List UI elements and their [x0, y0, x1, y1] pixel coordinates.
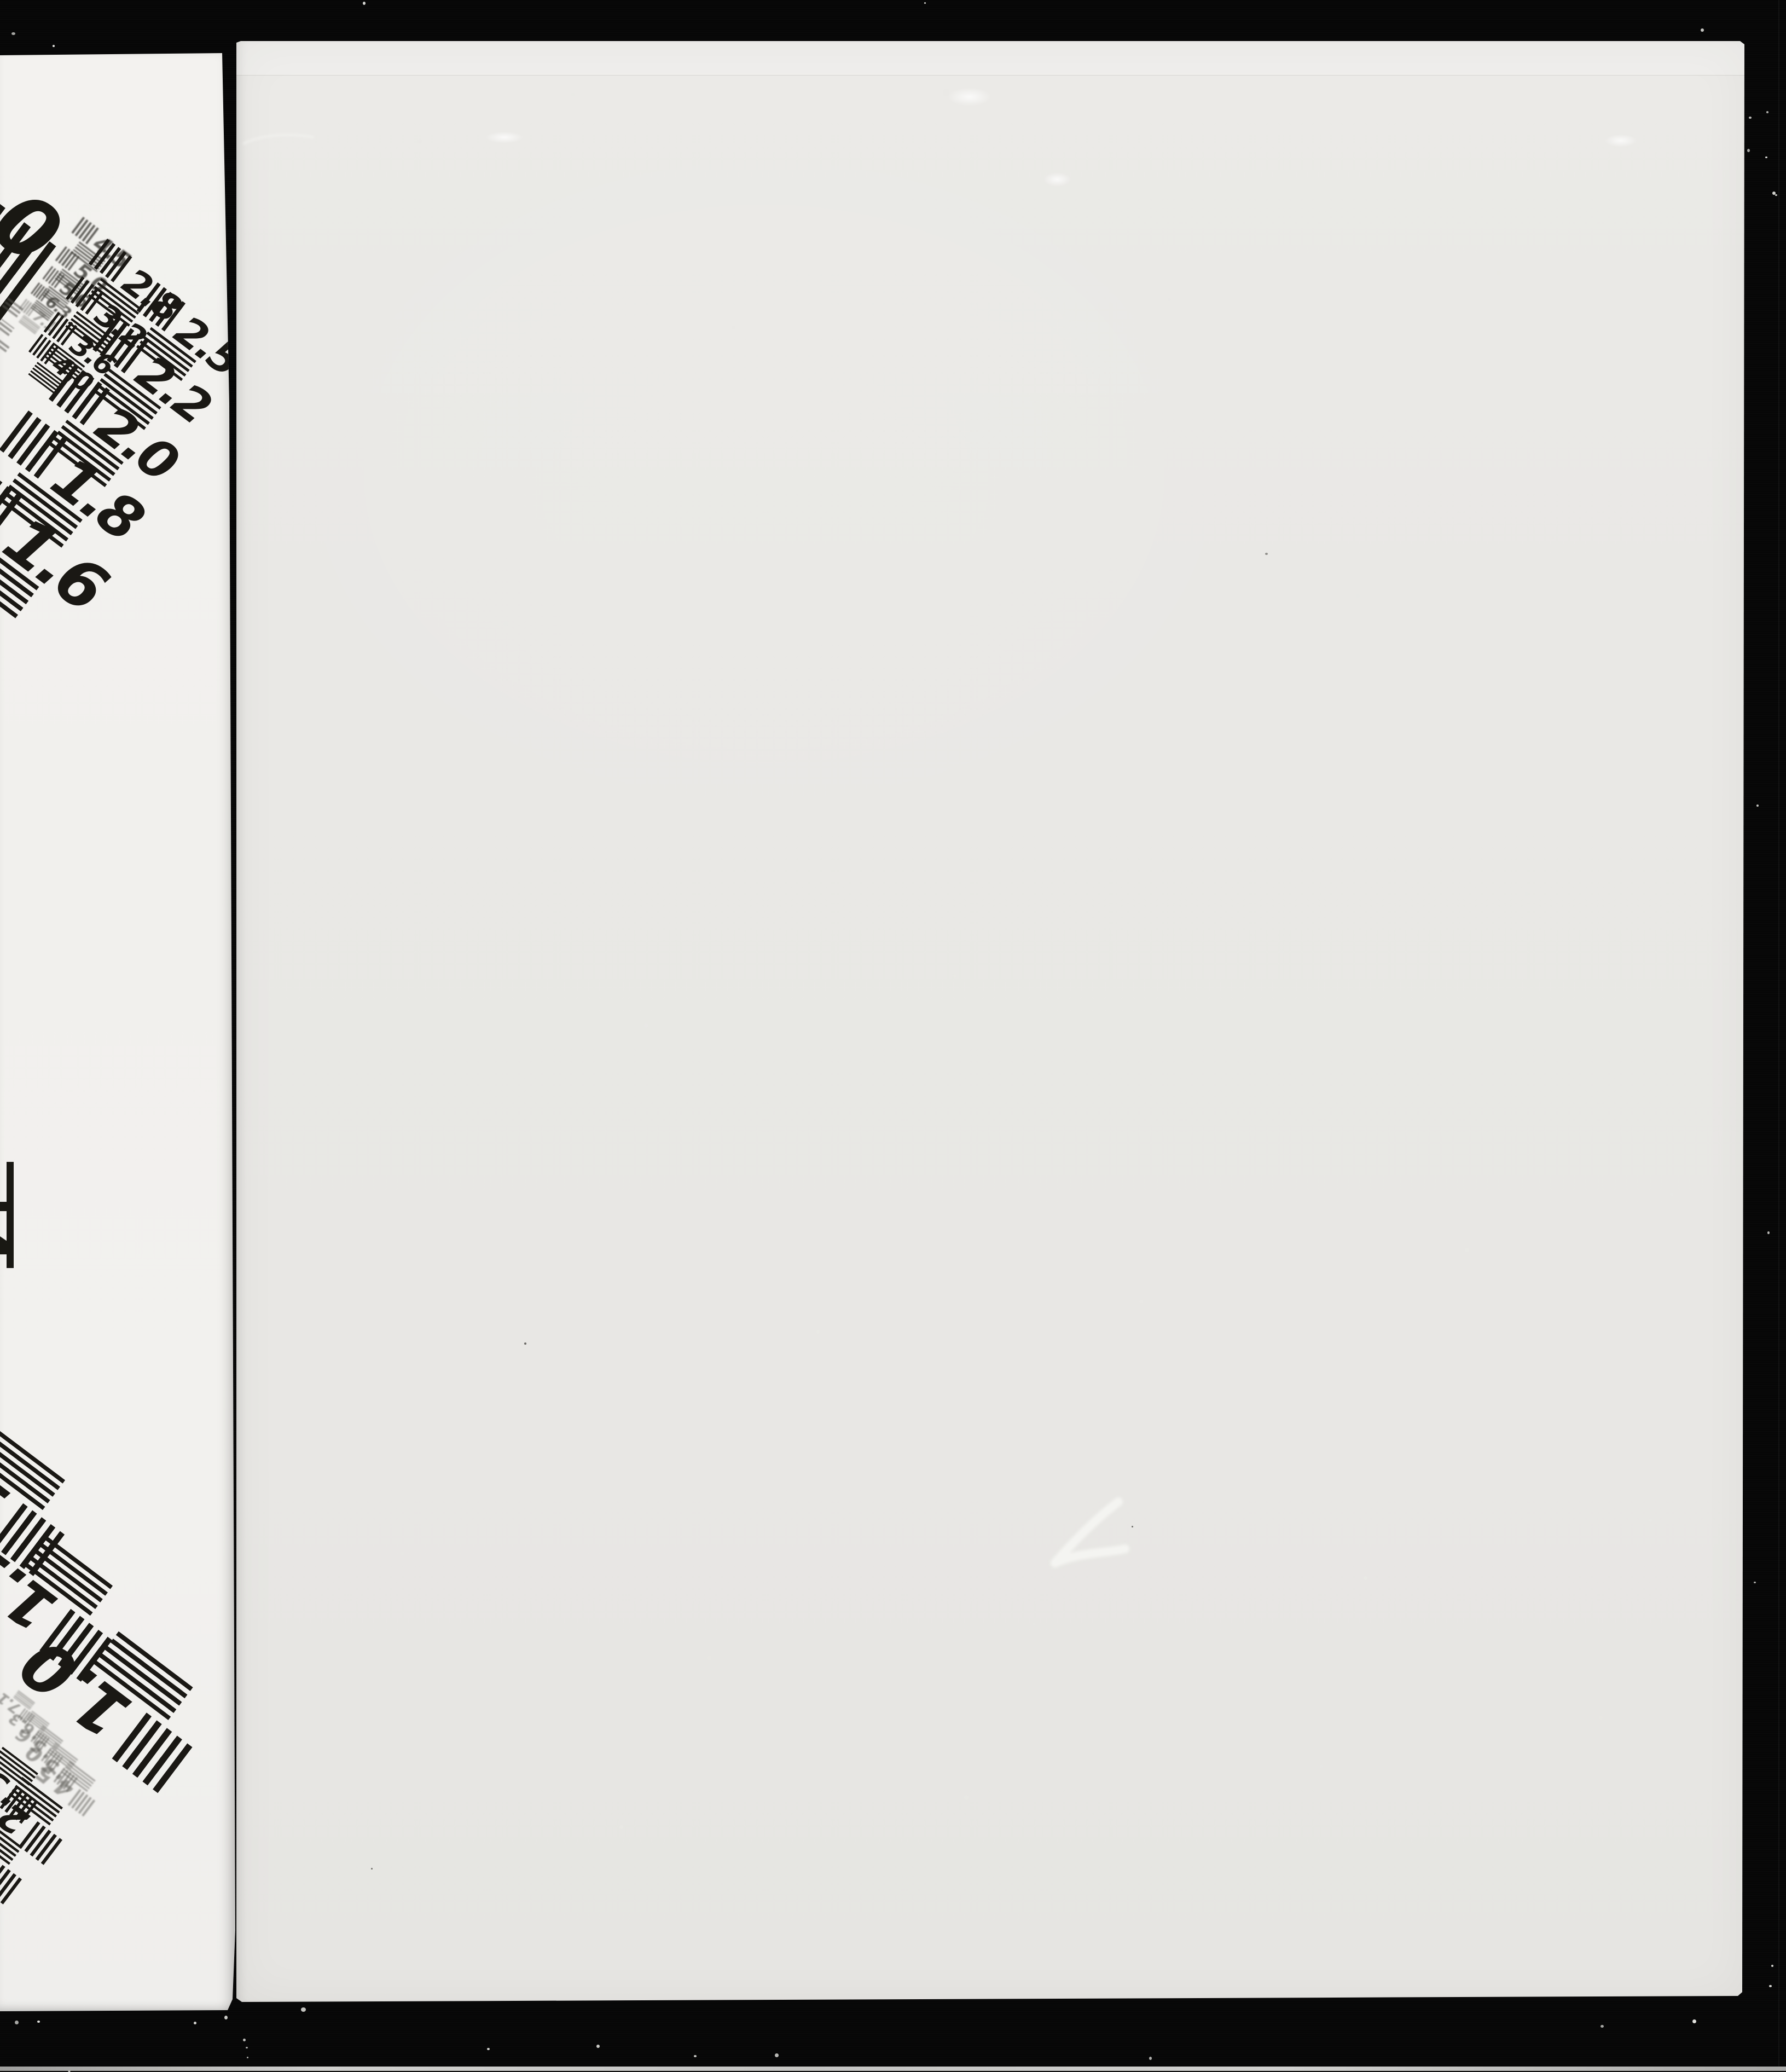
- pattern-vertical-lines: [71, 217, 98, 244]
- dust-speck: [1749, 117, 1752, 119]
- dust-speck: [243, 2039, 246, 2041]
- dust-speck: [1097, 687, 1101, 691]
- dust-speck: [466, 1234, 471, 1238]
- dust-speck: [1756, 805, 1759, 807]
- dust-speck: [417, 140, 422, 143]
- dust-speck: [707, 1656, 711, 1660]
- dust-speck: [1465, 1248, 1469, 1252]
- pattern-vertical-lines: [112, 1712, 193, 1793]
- dust-speck: [1775, 194, 1777, 196]
- dust-speck: [953, 974, 956, 978]
- dust-speck: [924, 2, 926, 4]
- dust-speck: [816, 1330, 820, 1334]
- dust-speck: [732, 326, 735, 329]
- dust-speck: [773, 717, 776, 720]
- dark-speck: [371, 1868, 373, 1870]
- edge-tick-pattern: [0, 336, 11, 352]
- film-scratch-line: [1778, 0, 1779, 2071]
- dust-speck: [571, 93, 575, 96]
- dust-speck: [596, 2045, 600, 2048]
- dust-speck: [1767, 1231, 1770, 1234]
- dust-speck: [1701, 28, 1704, 32]
- dust-speck: [619, 1825, 623, 1829]
- dust-speck: [224, 2016, 228, 2019]
- film-edge-strip: [0, 2067, 1786, 2071]
- dust-speck: [301, 2007, 306, 2012]
- dust-speck: [349, 895, 352, 898]
- dust-speck: [1765, 157, 1767, 158]
- dust-speck: [247, 2057, 248, 2058]
- faint-frame-line: [236, 75, 1744, 76]
- dust-speck: [1364, 1576, 1367, 1580]
- dust-speck: [246, 2047, 248, 2048]
- dust-speck: [1648, 1519, 1652, 1522]
- dust-speck: [503, 621, 508, 626]
- scuff-mark: [1036, 1494, 1157, 1604]
- dust-speck: [1692, 2019, 1696, 2023]
- dust-speck: [1168, 298, 1171, 301]
- dust-speck: [1599, 1716, 1603, 1720]
- fiducial-arrow-tip: [0, 1236, 9, 1248]
- dust-speck: [1769, 1985, 1772, 1987]
- dust-speck: [964, 1795, 969, 1800]
- document-page: [236, 41, 1744, 2002]
- dust-speck: [1033, 1623, 1036, 1625]
- dust-speck: [313, 457, 317, 460]
- dust-speck: [487, 2048, 490, 2050]
- dark-speck: [524, 1342, 526, 1345]
- dust-speck: [1747, 149, 1750, 152]
- dust-speck: [1279, 950, 1284, 954]
- dust-speck: [1670, 1193, 1673, 1196]
- dust-speck: [1320, 1765, 1323, 1768]
- calibration-page: 1.0 4.55.05.66.37.12.83.22.53.62.24.02.0…: [0, 53, 235, 2011]
- bright-smudge: [1604, 134, 1637, 147]
- film-background: 1.0 4.55.05.66.37.12.83.22.53.62.24.02.0…: [0, 0, 1786, 2071]
- dust-speck: [363, 2, 366, 5]
- dust-speck: [1708, 457, 1713, 461]
- dust-speck: [11, 32, 15, 35]
- dust-speck: [15, 2021, 19, 2024]
- page-top-tint: [236, 41, 1744, 75]
- dust-speck: [1139, 1300, 1143, 1303]
- dust-speck: [644, 1023, 648, 1028]
- dust-speck: [1525, 892, 1528, 895]
- dust-speck: [1692, 810, 1696, 813]
- dark-speck: [1265, 553, 1268, 555]
- dust-speck: [1771, 1965, 1773, 1967]
- scratch-mark: [241, 129, 317, 151]
- dust-speck: [1766, 111, 1768, 113]
- dust-speck: [694, 2055, 697, 2057]
- fiducial-stub: [0, 1202, 8, 1211]
- dust-speck: [1497, 271, 1501, 275]
- dust-speck: [1356, 594, 1360, 598]
- dust-speck: [1754, 1582, 1756, 1583]
- dust-speck: [194, 2022, 196, 2024]
- dust-speck: [53, 45, 55, 47]
- pattern-vertical-lines: [0, 410, 67, 479]
- dust-speck: [401, 1552, 404, 1555]
- dust-speck: [1550, 536, 1553, 539]
- pattern-vertical-lines: [0, 1861, 22, 1905]
- bright-smudge: [1043, 172, 1071, 187]
- bright-smudge: [948, 88, 991, 106]
- dust-speck: [1601, 2025, 1604, 2028]
- bright-smudge: [485, 131, 524, 143]
- dust-speck: [1149, 2057, 1152, 2060]
- dust-speck: [775, 2053, 779, 2057]
- dust-speck: [37, 2021, 40, 2023]
